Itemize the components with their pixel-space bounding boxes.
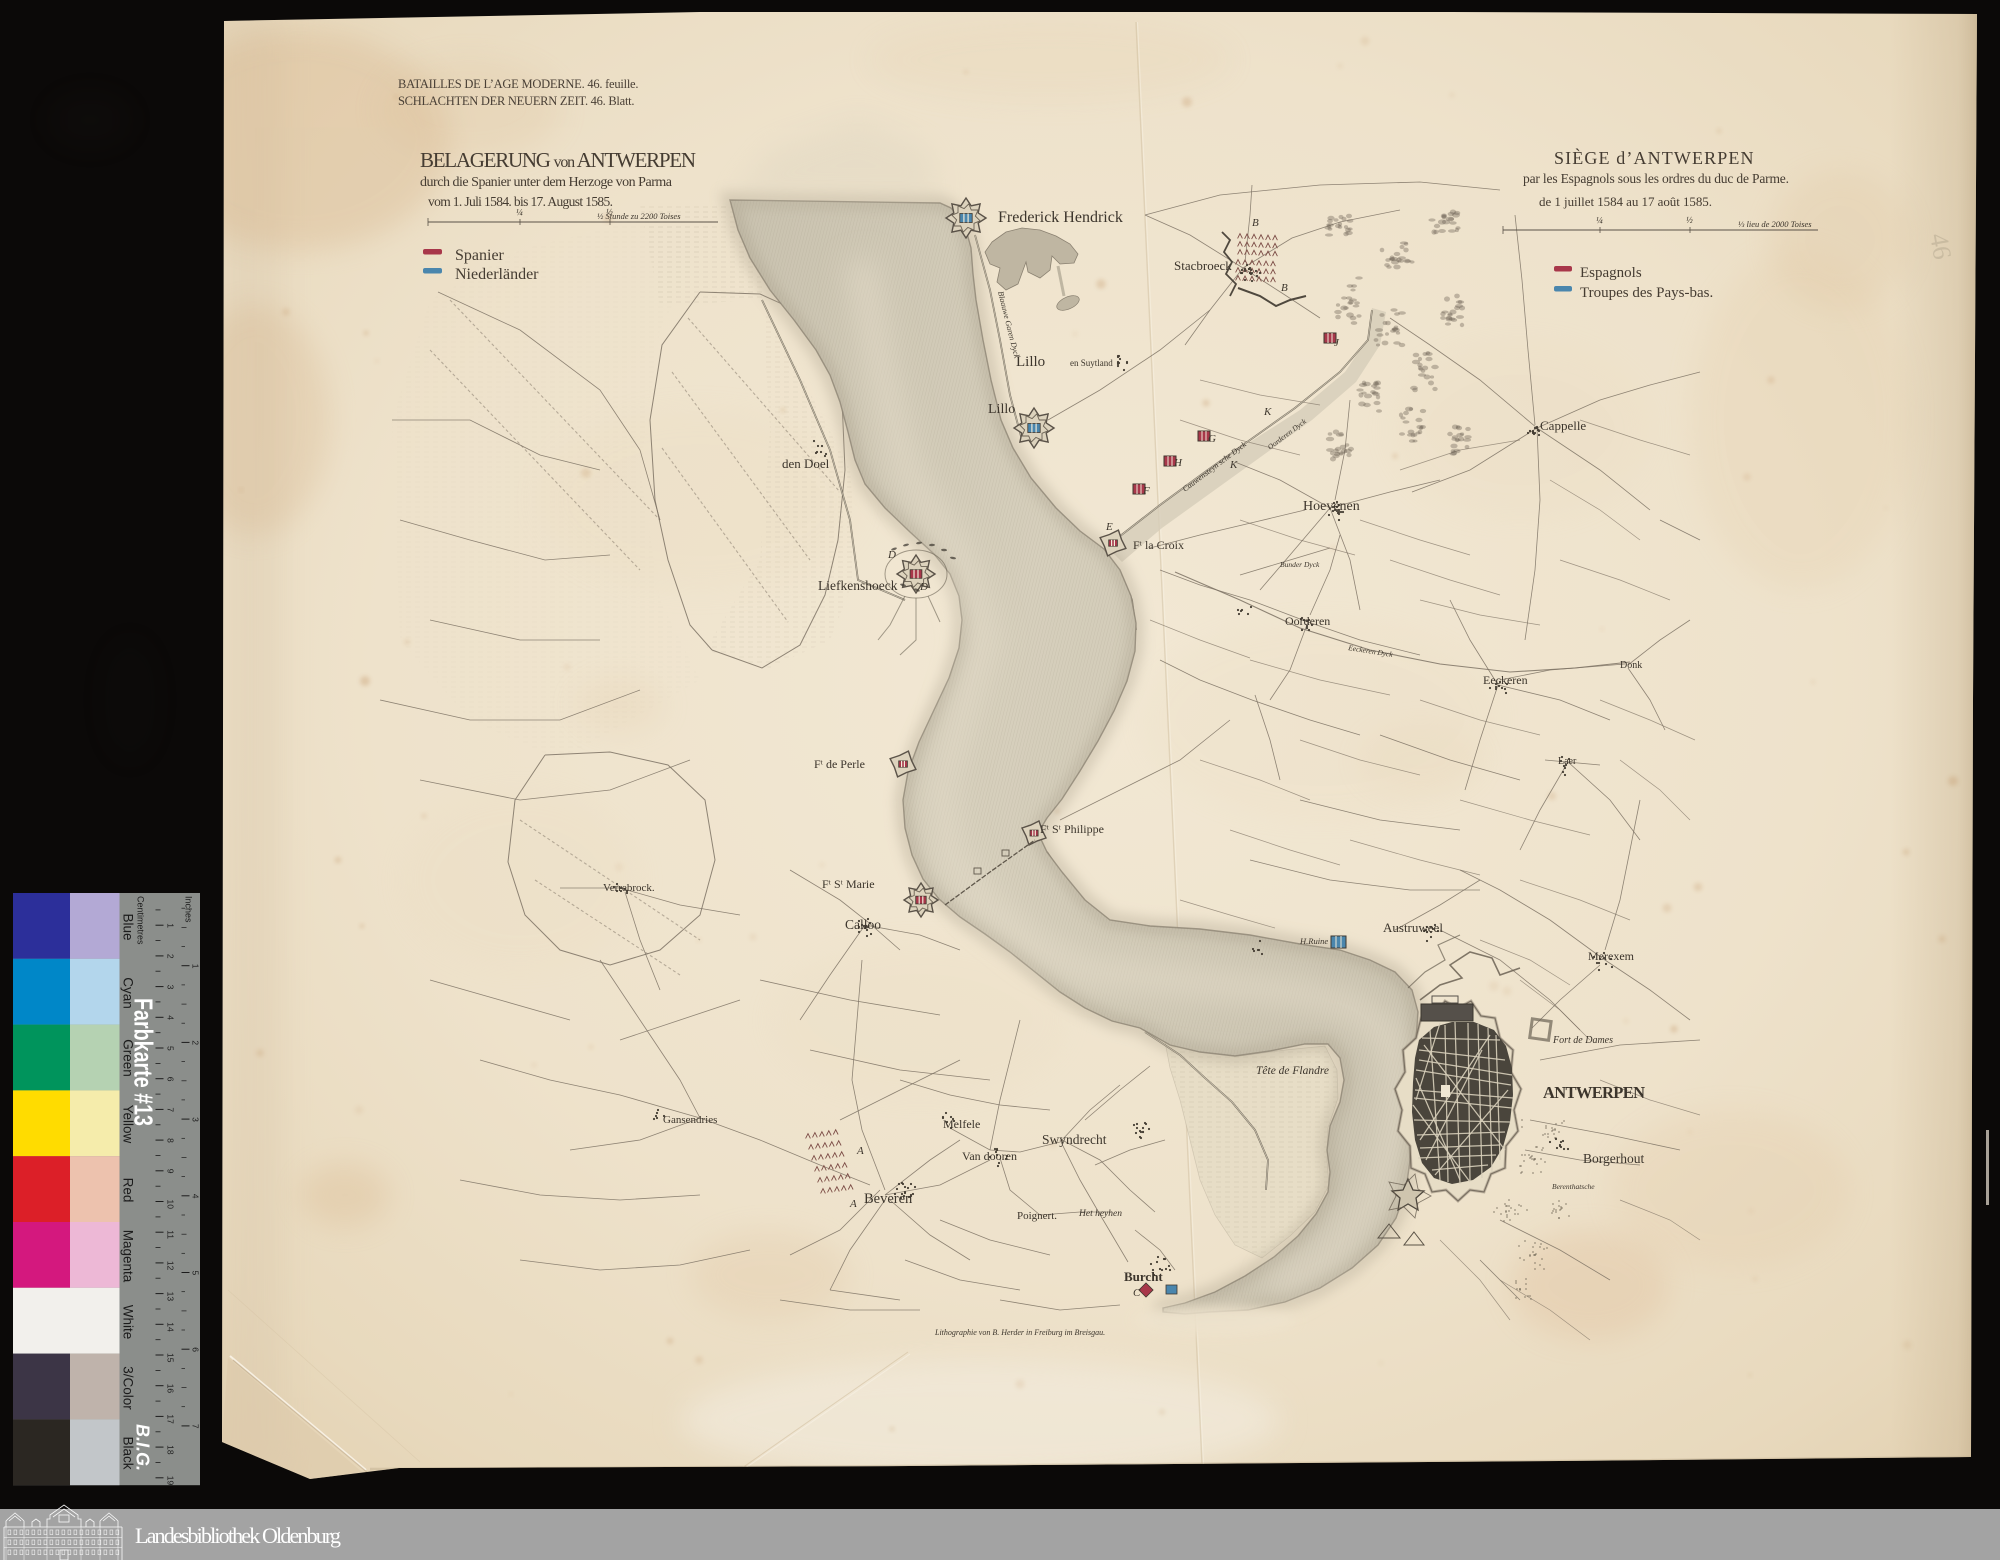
svg-text:3/Color: 3/Color xyxy=(121,1366,136,1410)
svg-text:D: D xyxy=(919,581,928,593)
svg-text:19: 19 xyxy=(166,1476,176,1486)
svg-text:Blue: Blue xyxy=(121,913,136,940)
svg-text:D: D xyxy=(887,549,896,561)
svg-text:5: 5 xyxy=(191,1271,201,1276)
svg-text:Cappelle: Cappelle xyxy=(1540,418,1586,433)
svg-text:B: B xyxy=(1252,217,1259,229)
svg-text:SCHLACHTEN DER NEUERN ZEIT. 46: SCHLACHTEN DER NEUERN ZEIT. 46. Blatt. xyxy=(398,94,636,108)
svg-text:2: 2 xyxy=(166,954,176,959)
svg-text:11: 11 xyxy=(166,1230,176,1239)
svg-text:18: 18 xyxy=(166,1445,176,1455)
svg-text:Donk: Donk xyxy=(1620,660,1642,671)
svg-text:6: 6 xyxy=(191,1347,201,1352)
svg-text:1: 1 xyxy=(166,923,176,928)
svg-text:Het heyhen: Het heyhen xyxy=(1078,1209,1122,1219)
svg-text:7: 7 xyxy=(191,1424,201,1429)
svg-text:¼: ¼ xyxy=(516,207,523,217)
svg-text:Calloo: Calloo xyxy=(845,917,881,932)
svg-text:E: E xyxy=(1105,521,1113,533)
svg-text:Liefkenshoeck: Liefkenshoeck xyxy=(818,578,898,593)
svg-text:en Suytland: en Suytland xyxy=(1070,358,1113,368)
svg-text:46: 46 xyxy=(1924,231,1957,262)
svg-text:Fᵗ Sᵗ Philippe: Fᵗ Sᵗ Philippe xyxy=(1040,822,1104,836)
svg-text:A: A xyxy=(849,1198,857,1210)
svg-text:13: 13 xyxy=(166,1292,176,1302)
svg-text:Niederländer: Niederländer xyxy=(455,266,539,283)
svg-text:Laer: Laer xyxy=(1558,756,1577,767)
svg-text:Beveren: Beveren xyxy=(864,1191,913,1207)
svg-text:1: 1 xyxy=(191,964,201,969)
svg-text:Espagnols: Espagnols xyxy=(1580,265,1642,281)
svg-text:de 1 juillet 1584 au 17 août 1: de 1 juillet 1584 au 17 août 1585. xyxy=(1539,194,1712,209)
svg-text:F: F xyxy=(1142,485,1150,497)
svg-text:Troupes des Pays-bas.: Troupes des Pays-bas. xyxy=(1580,285,1713,301)
svg-text:Fᵗ de Perle: Fᵗ de Perle xyxy=(814,757,865,771)
svg-text:Swyndrecht: Swyndrecht xyxy=(1042,1132,1107,1147)
svg-text:G: G xyxy=(1208,433,1216,445)
svg-text:Melfele: Melfele xyxy=(943,1117,980,1131)
svg-text:den Doel: den Doel xyxy=(782,456,830,471)
svg-text:Fᵗ la Croix: Fᵗ la Croix xyxy=(1133,538,1184,552)
svg-text:Fort de Dames: Fort de Dames xyxy=(1552,1035,1613,1046)
svg-text:A: A xyxy=(856,1145,864,1157)
svg-text:6: 6 xyxy=(166,1077,176,1082)
svg-text:White: White xyxy=(121,1305,136,1340)
svg-text:H.Ruine: H.Ruine xyxy=(1299,936,1328,946)
svg-text:Poignert.: Poignert. xyxy=(1017,1210,1057,1222)
svg-text:9: 9 xyxy=(166,1169,176,1174)
svg-text:Oorderen: Oorderen xyxy=(1285,614,1330,628)
svg-text:½: ½ xyxy=(1686,215,1693,225)
svg-text:4: 4 xyxy=(166,1015,176,1020)
svg-text:16: 16 xyxy=(166,1384,176,1394)
svg-text:Austruweel: Austruweel xyxy=(1383,920,1443,935)
svg-text:Gansendries: Gansendries xyxy=(663,1114,717,1126)
svg-text:Tête de Flandre: Tête de Flandre xyxy=(1256,1065,1329,1077)
svg-text:Borgerhout: Borgerhout xyxy=(1583,1151,1644,1166)
svg-text:3: 3 xyxy=(191,1117,201,1122)
svg-text:Landesbibliothek Oldenburg: Landesbibliothek Oldenburg xyxy=(135,1523,341,1548)
svg-text:Frederick Hendrick: Frederick Hendrick xyxy=(998,209,1123,226)
svg-text:Spanier: Spanier xyxy=(455,247,505,264)
svg-text:Red: Red xyxy=(121,1178,136,1203)
svg-text:Inches: Inches xyxy=(184,896,194,923)
svg-text:SIÈGE d’ANTWERPEN: SIÈGE d’ANTWERPEN xyxy=(1554,147,1755,168)
svg-text:Magenta: Magenta xyxy=(121,1230,136,1283)
svg-text:durch die Spanier unter dem He: durch die Spanier unter dem Herzoge von … xyxy=(420,175,673,190)
svg-text:Hoevenen: Hoevenen xyxy=(1303,499,1360,514)
svg-text:BATAILLES DE L’AGE MODERNE. 46: BATAILLES DE L’AGE MODERNE. 46. feuille. xyxy=(398,77,640,91)
svg-text:Burcht: Burcht xyxy=(1124,1269,1163,1284)
svg-text:K: K xyxy=(1263,406,1272,418)
svg-text:8: 8 xyxy=(166,1138,176,1143)
svg-text:15: 15 xyxy=(166,1353,176,1363)
svg-text:¼: ¼ xyxy=(1596,215,1603,225)
svg-text:7: 7 xyxy=(166,1107,176,1112)
svg-text:K: K xyxy=(1229,459,1238,471)
svg-text:Farbkarte #13: Farbkarte #13 xyxy=(129,998,159,1126)
svg-text:½ Stunde zu 2200 Toises: ½ Stunde zu 2200 Toises xyxy=(597,211,681,221)
svg-text:B: B xyxy=(1281,282,1288,294)
svg-text:Stacbroeck: Stacbroeck xyxy=(1174,258,1232,273)
svg-text:ANTWERPEN: ANTWERPEN xyxy=(1543,1083,1647,1102)
svg-text:Fᵗ Sᵗ Marie: Fᵗ Sᵗ Marie xyxy=(822,877,875,891)
svg-text:10: 10 xyxy=(166,1200,176,1210)
svg-text:Verrebrock.: Verrebrock. xyxy=(603,882,655,894)
svg-text:C: C xyxy=(1133,1287,1141,1299)
svg-text:3: 3 xyxy=(166,985,176,990)
svg-text:Merexem: Merexem xyxy=(1588,949,1635,963)
svg-text:2: 2 xyxy=(191,1040,201,1045)
svg-text:12: 12 xyxy=(166,1261,176,1271)
svg-text:par les Espagnols sous les ord: par les Espagnols sous les ordres du duc… xyxy=(1523,171,1789,186)
svg-text:5: 5 xyxy=(166,1046,176,1051)
svg-text:H: H xyxy=(1173,457,1183,469)
svg-text:Berenthatsche: Berenthatsche xyxy=(1552,1182,1595,1191)
svg-text:17: 17 xyxy=(166,1414,176,1424)
svg-text:14: 14 xyxy=(166,1322,176,1332)
svg-text:⅓ lieu de 2000 Toises: ⅓ lieu de 2000 Toises xyxy=(1738,219,1812,229)
svg-text:Centimetres: Centimetres xyxy=(136,896,146,945)
svg-text:4: 4 xyxy=(191,1194,201,1199)
svg-text:Van dooren: Van dooren xyxy=(962,1149,1017,1163)
svg-text:B.I.G.: B.I.G. xyxy=(133,1424,153,1471)
svg-text:Lithographie von B. Herder in: Lithographie von B. Herder in Freiburg i… xyxy=(934,1328,1105,1337)
svg-text:Lillo: Lillo xyxy=(988,402,1015,417)
svg-text:Eeckeren: Eeckeren xyxy=(1483,673,1528,687)
svg-text:Bunder Dyck: Bunder Dyck xyxy=(1280,560,1320,569)
